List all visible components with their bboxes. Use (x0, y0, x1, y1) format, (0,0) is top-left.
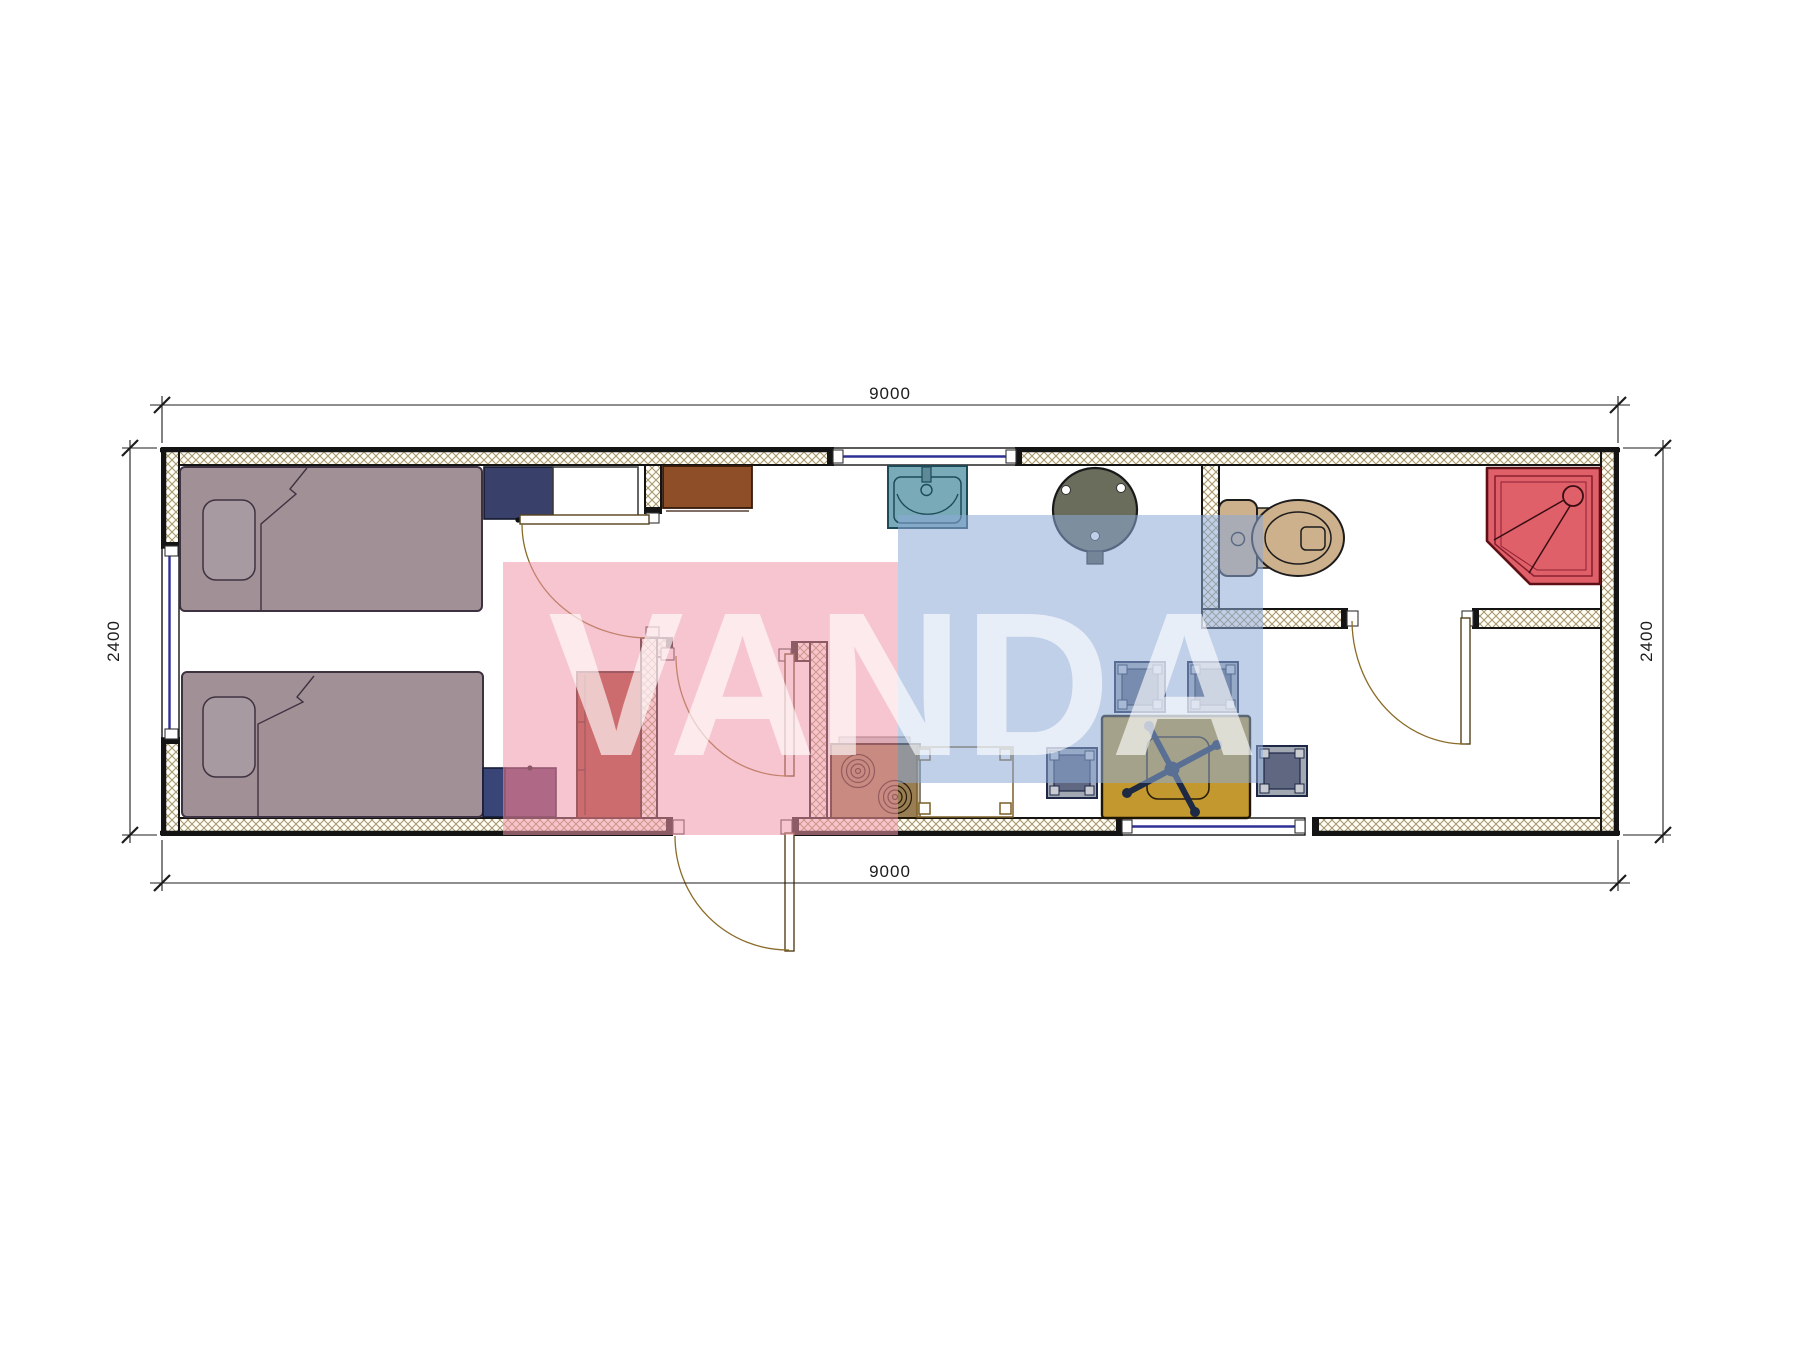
door-leaf (520, 515, 649, 524)
floor-plan-page: VANDA 9000 9000 2400 (0, 0, 1800, 1350)
faucet (922, 467, 931, 482)
bathroom-wall-right (1473, 609, 1601, 628)
cabinet-brown (663, 466, 752, 511)
pillow (203, 697, 255, 777)
cabinet-white (553, 467, 638, 519)
entry-door (673, 820, 794, 951)
dimension-right: 2400 (1623, 440, 1671, 843)
nightstand-navy (484, 467, 553, 523)
box-blue (483, 768, 505, 817)
floor-plan-drawing: VANDA 9000 9000 2400 (0, 0, 1800, 1350)
bed-top (180, 467, 482, 611)
bed-bottom (182, 672, 483, 817)
closet-stub-wall (645, 465, 661, 513)
watermark-text: VANDA (548, 570, 1258, 799)
dimension-left: 2400 (104, 440, 157, 843)
dim-height-right: 2400 (1637, 620, 1656, 662)
watermark: VANDA (503, 515, 1263, 835)
left-wall-window (162, 546, 179, 739)
dim-width-bottom: 9000 (869, 862, 911, 881)
dim-height-left: 2400 (104, 620, 123, 662)
shower (1487, 468, 1600, 584)
dimension-bottom: 9000 (150, 840, 1630, 891)
top-wall-window (833, 448, 1016, 465)
bottom-wall-window (1122, 818, 1305, 835)
pillow (203, 500, 255, 580)
door-leaf (785, 833, 794, 951)
door-leaf (1461, 618, 1470, 744)
dimension-top: 9000 (150, 384, 1630, 443)
bathroom-door (1347, 611, 1473, 744)
dim-width-top: 9000 (869, 384, 911, 403)
stool-4 (1257, 746, 1307, 796)
